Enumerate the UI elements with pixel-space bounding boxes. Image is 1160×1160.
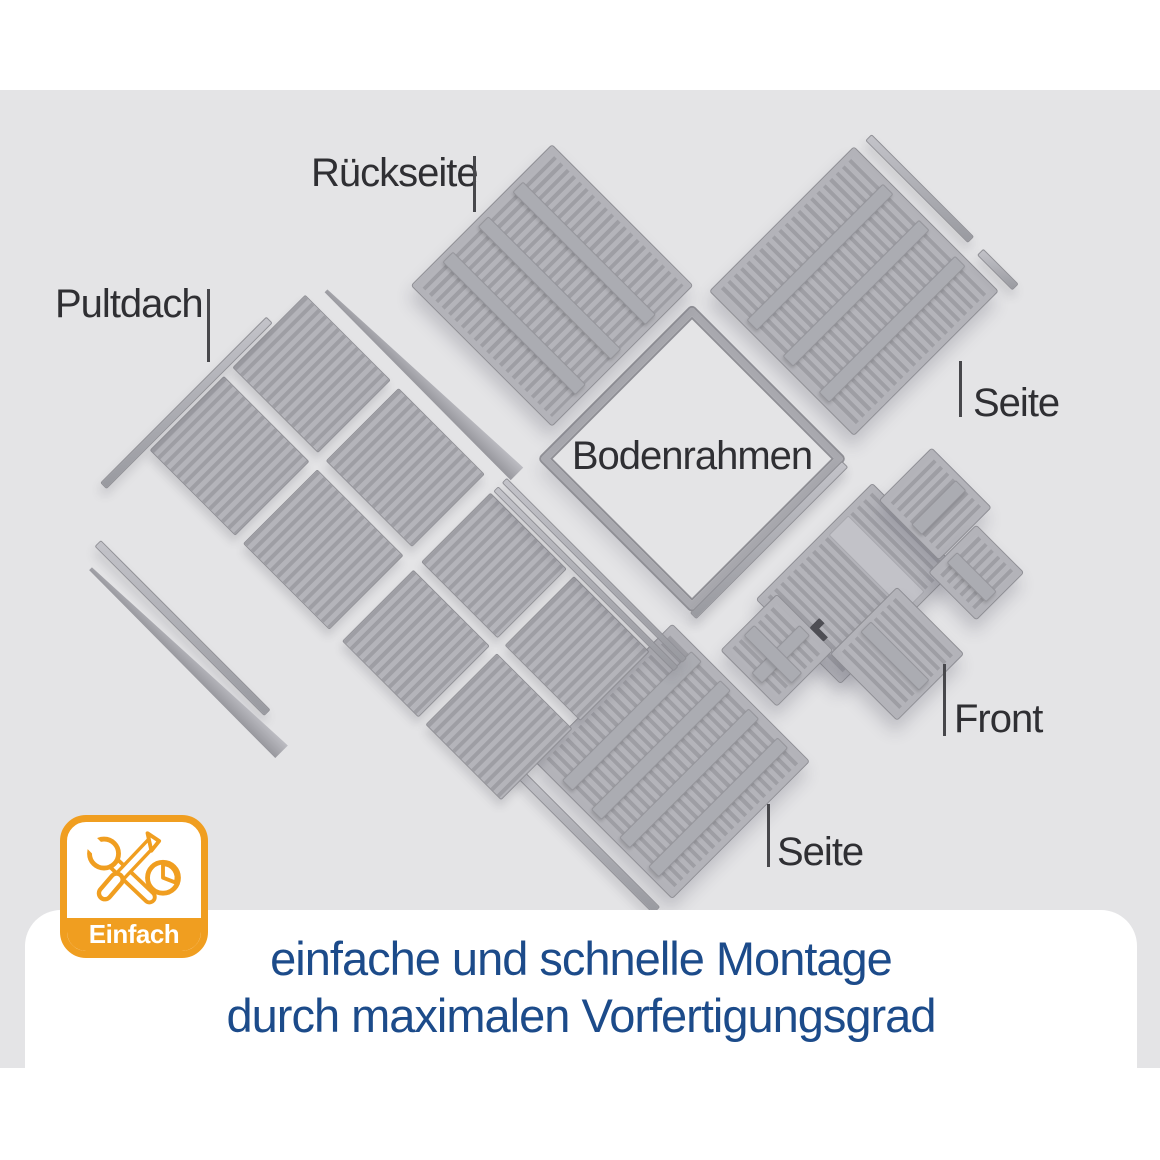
pointer-tick [767,804,770,867]
label-seite-bottom: Seite [777,830,863,875]
batten [478,216,622,360]
easy-assembly-badge: Einfach [60,815,208,958]
label-seite-right: Seite [973,381,1059,426]
label-front: Front [954,697,1042,742]
batten [947,552,997,602]
batten [819,255,966,402]
badge-label: Einfach [67,918,201,951]
label-bodenrahmen: Bodenrahmen [572,434,812,479]
pointer-tick [207,289,210,362]
pointer-tick [959,361,962,417]
clock-icon [148,862,179,893]
tools-icon-group [67,822,201,918]
batten [912,480,967,535]
pointer-tick [473,156,476,212]
product-diagram-page: Rückseite Pultdach Seite Bodenrahmen Fro… [0,0,1160,1160]
batten [747,183,894,330]
batten [860,621,929,690]
pointer-tick [943,664,946,736]
batten [783,219,930,366]
label-rueckseite: Rückseite [311,151,478,196]
batten [443,251,587,395]
roof-rail [95,540,271,716]
batten [513,181,657,325]
gable-wedge [88,558,288,758]
tools-clock-icon [76,825,192,915]
caption-line-2: durch maximalen Vorfertigungsgrad [25,987,1137,1044]
label-pultdach: Pultdach [55,282,203,327]
